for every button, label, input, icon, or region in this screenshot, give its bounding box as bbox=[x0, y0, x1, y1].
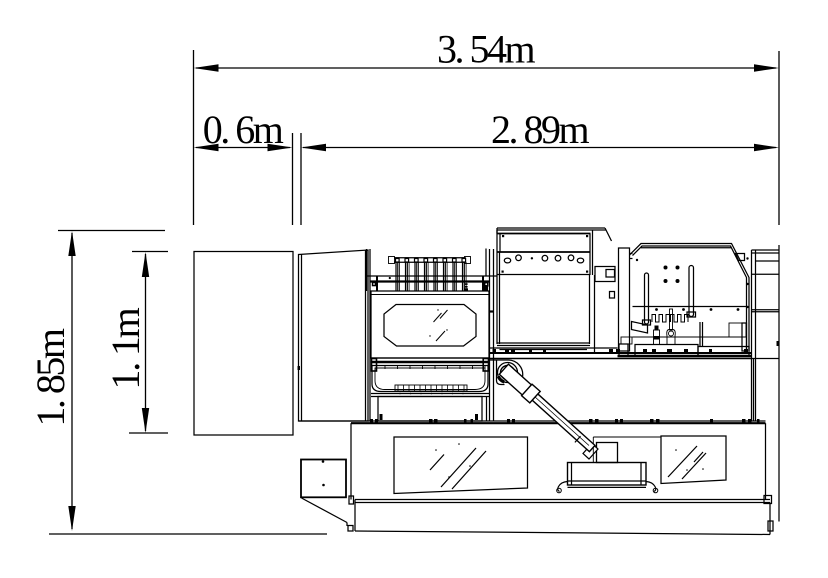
svg-text:1. 85m: 1. 85m bbox=[28, 328, 73, 427]
svg-text:0. 6m: 0. 6m bbox=[203, 107, 284, 152]
svg-text:3. 54m: 3. 54m bbox=[437, 27, 536, 72]
svg-text:2. 89m: 2. 89m bbox=[491, 107, 590, 152]
svg-text:1. 1m: 1. 1m bbox=[103, 307, 148, 389]
